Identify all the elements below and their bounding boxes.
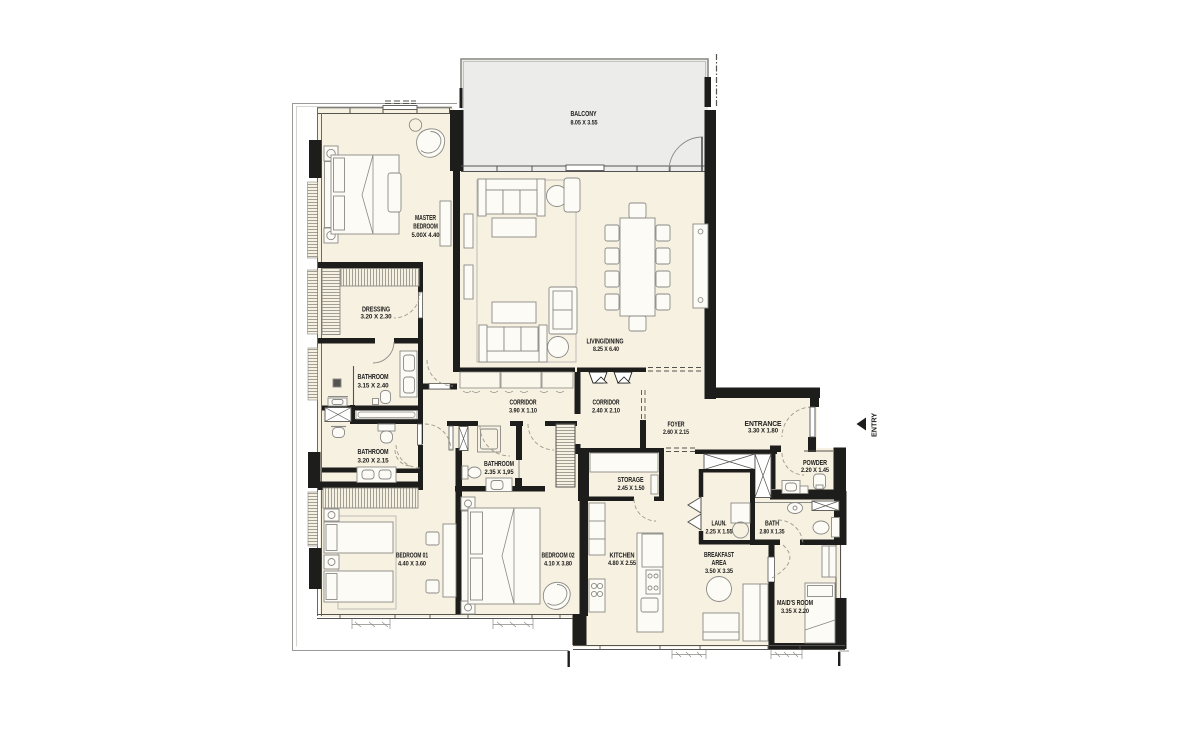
svg-text:BATHROOM: BATHROOM [484,461,514,468]
svg-text:BEDROOM 02: BEDROOM 02 [542,553,575,560]
svg-text:3.35 X 2.20: 3.35 X 2.20 [781,608,809,615]
svg-text:POWDER: POWDER [803,460,827,467]
svg-text:2.35 X 1,95: 2.35 X 1,95 [485,469,514,476]
svg-text:MAID'S ROOM: MAID'S ROOM [777,600,813,607]
svg-text:BATHROOM: BATHROOM [358,374,389,381]
svg-text:CORRIDOR: CORRIDOR [510,400,537,407]
svg-text:3.50 X 3.35: 3.50 X 3.35 [705,568,733,575]
svg-text:AREA: AREA [712,560,727,567]
svg-text:BEDROOM: BEDROOM [413,224,438,231]
svg-text:2.45 X 1.50: 2.45 X 1.50 [618,485,645,492]
svg-text:KITCHEN: KITCHEN [610,553,635,560]
svg-text:2.60 X 2.15: 2.60 X 2.15 [663,429,689,436]
svg-text:4.80 X 2.55: 4.80 X 2.55 [608,560,636,567]
svg-text:4.40 X 3.60: 4.40 X 3.60 [398,561,426,568]
svg-text:LAUN.: LAUN. [712,521,727,528]
svg-text:3.20 X 2.15: 3.20 X 2.15 [358,458,389,465]
svg-text:BEDROOM 01: BEDROOM 01 [396,553,428,560]
svg-text:BREAKFAST: BREAKFAST [704,552,735,559]
svg-text:2.25 X 1.55: 2.25 X 1.55 [706,529,733,536]
svg-text:BALCONY: BALCONY [571,111,597,118]
svg-text:3.15 X 2.40: 3.15 X 2.40 [358,383,389,390]
svg-text:3.20 X 2.30: 3.20 X 2.30 [361,314,392,321]
svg-text:STORAGE: STORAGE [618,477,644,484]
svg-text:2.20 X 1.45: 2.20 X 1.45 [801,467,829,474]
svg-text:LIVING/DINING: LIVING/DINING [587,339,624,346]
svg-text:5.00X 4.40: 5.00X 4.40 [412,232,440,239]
svg-text:BATHROOM: BATHROOM [358,449,389,456]
svg-text:4.10 X 3.80: 4.10 X 3.80 [544,561,572,568]
svg-text:2.40 X 2.10: 2.40 X 2.10 [592,408,620,415]
svg-text:3.90 X 1.10: 3.90 X 1.10 [509,408,537,415]
svg-text:ENTRY: ENTRY [872,413,879,437]
svg-text:8.05 X 3.55: 8.05 X 3.55 [571,120,598,127]
svg-text:2.80 X 1.35: 2.80 X 1.35 [760,529,785,536]
svg-text:CORRIDOR: CORRIDOR [593,400,620,407]
svg-text:DRESSING: DRESSING [362,307,391,314]
svg-text:8.25 X 6.40: 8.25 X 6.40 [593,346,619,353]
svg-text:3.30 X 1.80: 3.30 X 1.80 [748,428,778,435]
svg-text:MASTER: MASTER [415,215,436,222]
svg-text:FOYER: FOYER [668,422,685,429]
svg-text:BATH: BATH [765,521,779,528]
